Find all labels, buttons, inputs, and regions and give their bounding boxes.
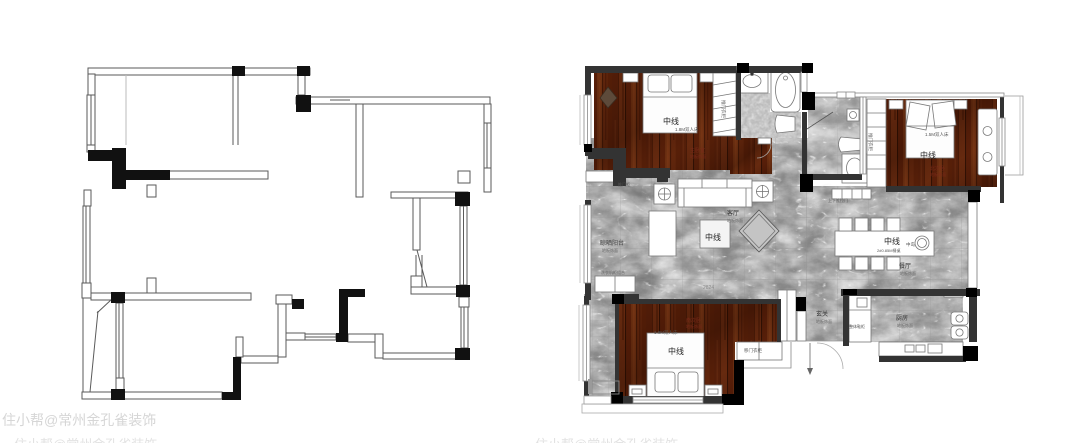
- svg-text:南次卧: 南次卧: [686, 317, 701, 324]
- svg-text:整体鞋柜: 整体鞋柜: [849, 323, 865, 329]
- svg-text:地板饰面: 地板饰面: [900, 270, 916, 276]
- svg-text:2824: 2824: [703, 285, 714, 291]
- svg-text:移门衣柜: 移门衣柜: [744, 347, 762, 354]
- svg-text:中线: 中线: [663, 116, 679, 126]
- svg-text:餐厅: 餐厅: [899, 262, 911, 270]
- svg-text:地板饰面: 地板饰面: [727, 217, 743, 223]
- svg-text:住小帮@常州金孔雀装饰: 住小帮@常州金孔雀装饰: [14, 437, 157, 443]
- svg-text:推门衣柜: 推门衣柜: [720, 100, 727, 118]
- svg-text:中线: 中线: [668, 346, 684, 356]
- svg-text:中岛: 中岛: [906, 241, 915, 248]
- svg-text:玄关: 玄关: [816, 310, 828, 318]
- svg-text:地板饰面: 地板饰面: [897, 322, 913, 328]
- svg-text:地板饰面: 地板饰面: [602, 247, 618, 253]
- svg-text:推门柜: 推门柜: [618, 181, 630, 187]
- svg-text:1.5M双人床: 1.5M双人床: [925, 131, 949, 138]
- svg-text:北次卧: 北次卧: [930, 165, 945, 172]
- svg-text:地板饰面: 地板饰面: [930, 171, 946, 177]
- svg-text:中线: 中线: [705, 232, 721, 242]
- svg-text:地板饰面: 地板饰面: [686, 323, 702, 329]
- svg-text:洗衣机柜组合: 洗衣机柜组合: [601, 269, 625, 275]
- svg-text:1.8M双人床: 1.8M双人床: [675, 126, 699, 133]
- svg-text:晾晒阳台: 晾晒阳台: [600, 239, 624, 247]
- svg-text:客厅: 客厅: [727, 209, 739, 217]
- svg-text:推门衣柜: 推门衣柜: [867, 133, 874, 151]
- svg-text:住小帮@常州金孔雀装饰: 住小帮@常州金孔雀装饰: [2, 412, 156, 428]
- svg-text:上下推拉门: 上下推拉门: [828, 197, 848, 203]
- svg-text:1.8M双人床: 1.8M双人床: [654, 329, 678, 336]
- svg-text:厨房: 厨房: [896, 314, 908, 322]
- svg-text:住小帮@常州金孔雀装饰: 住小帮@常州金孔雀装饰: [535, 437, 678, 443]
- svg-text:主卧室: 主卧室: [690, 147, 705, 154]
- svg-text:2#0.85M餐桌: 2#0.85M餐桌: [877, 247, 901, 253]
- svg-text:中线: 中线: [920, 150, 936, 160]
- svg-text:地板饰面: 地板饰面: [816, 318, 832, 324]
- svg-text:中线: 中线: [884, 236, 900, 246]
- svg-text:地板饰面: 地板饰面: [690, 153, 706, 159]
